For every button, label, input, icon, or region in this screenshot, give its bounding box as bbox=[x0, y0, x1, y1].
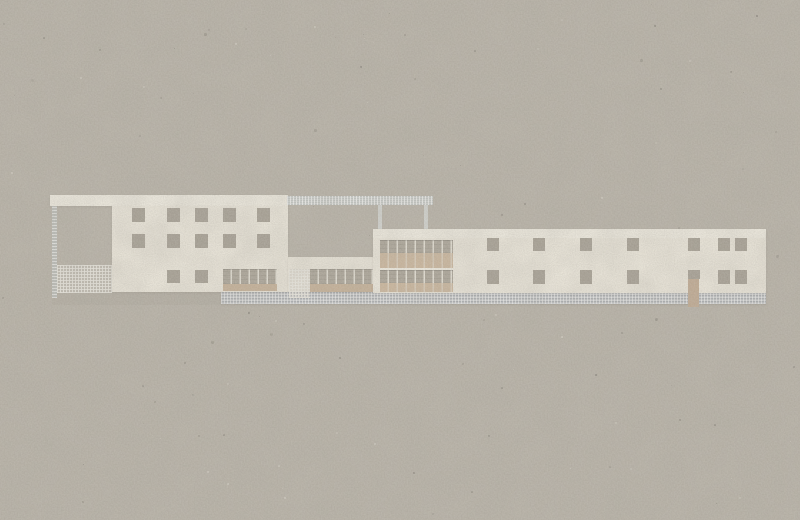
left-block-window-sill bbox=[223, 284, 277, 291]
left-block-window bbox=[195, 208, 208, 222]
left-block-window bbox=[132, 234, 145, 248]
right-block-window bbox=[627, 238, 639, 251]
right-block-window bbox=[580, 238, 592, 251]
right-block-window bbox=[487, 270, 499, 284]
left-block-ribbon-window bbox=[223, 269, 277, 284]
right-block-window bbox=[735, 238, 747, 251]
pergola-top-band bbox=[50, 195, 288, 206]
pergola-mesh-fence bbox=[57, 265, 112, 293]
curtain-wall-glazing bbox=[380, 240, 453, 253]
right-block-window bbox=[688, 238, 700, 251]
right-block-window bbox=[688, 270, 700, 279]
right-block-window bbox=[533, 270, 545, 284]
left-block-window bbox=[195, 270, 208, 283]
left-block-window bbox=[223, 234, 236, 248]
entrance-door bbox=[688, 279, 699, 307]
roof-frame-post bbox=[424, 205, 428, 229]
wing-mesh-gate bbox=[289, 269, 310, 298]
left-block-window bbox=[167, 270, 180, 283]
left-block-window bbox=[257, 208, 270, 222]
left-block-window bbox=[132, 208, 145, 222]
right-block-window bbox=[718, 270, 730, 284]
elevation-canvas bbox=[0, 0, 800, 520]
wing-ribbon-window bbox=[310, 269, 382, 284]
roof-frame-post bbox=[378, 205, 382, 229]
left-block-window bbox=[167, 208, 180, 222]
roof-frame-beam bbox=[287, 196, 433, 205]
right-block-window bbox=[718, 238, 730, 251]
left-block-window bbox=[167, 234, 180, 248]
curtain-wall-spandrel bbox=[380, 283, 453, 292]
left-block-window bbox=[223, 208, 236, 222]
left-block-window bbox=[195, 234, 208, 248]
elevation-drawing bbox=[0, 0, 800, 520]
right-block-window bbox=[487, 238, 499, 251]
left-block-window bbox=[257, 234, 270, 248]
right-block-window bbox=[580, 270, 592, 284]
right-block-window bbox=[533, 238, 545, 251]
right-block-window bbox=[627, 270, 639, 284]
curtain-wall-glazing bbox=[380, 270, 453, 283]
curtain-wall-spandrel bbox=[380, 253, 453, 268]
wing-window-sill bbox=[310, 284, 382, 292]
right-block-top-band bbox=[373, 229, 766, 238]
right-block-window bbox=[735, 270, 747, 284]
